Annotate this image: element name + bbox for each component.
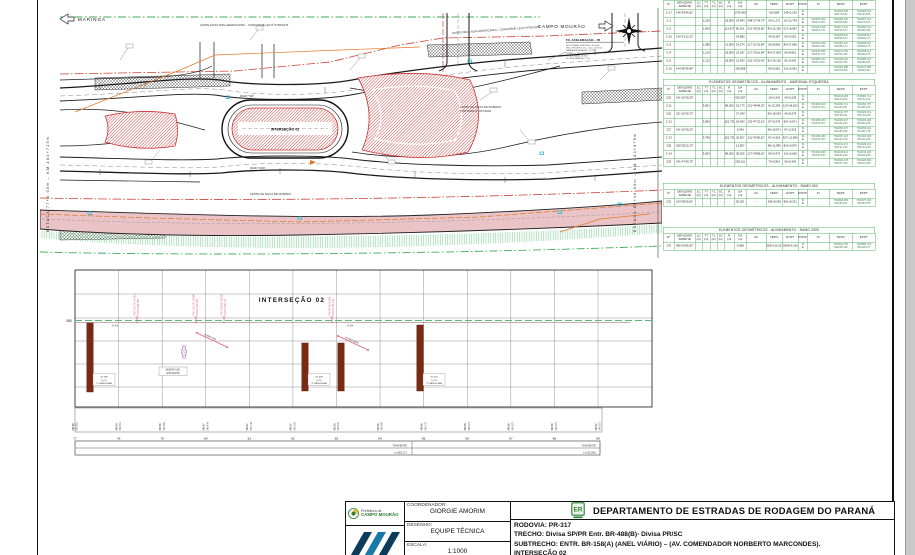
table-cell: 162,735 xyxy=(724,118,734,126)
table-cell: - xyxy=(674,102,695,110)
table-cell: 84+17,895 xyxy=(782,41,798,49)
table-cell: 1,116 xyxy=(702,49,710,57)
table-cell: 7364057,101 360276,815 xyxy=(852,17,875,25)
table-row: 229241°47'49,73"-----230,011-70+5,81090+… xyxy=(663,158,875,166)
table-cell: - xyxy=(717,49,724,57)
left-island xyxy=(105,111,178,148)
table-cell: - xyxy=(710,150,717,158)
elevation-ground: 549,162 xyxy=(295,421,297,430)
table-cell: N E xyxy=(798,110,807,118)
piv-point xyxy=(223,317,225,319)
table-cell: 7364066,407 361062,025 xyxy=(829,118,852,126)
table-cell: 96+15,871 xyxy=(766,126,782,134)
title-block-logos: Prefeitura de CAMPO MOURÃO xyxy=(346,502,405,555)
geo-table-grid: NºDEFLEXÃO AZIMUTELC (m)TT (m)TL (m)SC (… xyxy=(663,0,876,74)
table-cell: 88,000 xyxy=(724,102,734,110)
table-cell: - xyxy=(746,198,766,206)
table-cell: 7364067,103 361044,728 xyxy=(829,134,852,142)
table-cell: 7364063,818 361063,701 xyxy=(807,102,829,110)
elevation-axis-label: 550 xyxy=(66,319,72,323)
table-cell: - xyxy=(717,102,724,110)
svg-text:L=132,891: L=132,891 xyxy=(583,451,596,455)
table-cell: 70+5,810 xyxy=(766,158,782,166)
table-cell: C-16 xyxy=(663,33,674,41)
table-header-cell: DA (m) xyxy=(734,85,746,94)
trecho-line: TRECHO: Divisa SP/PR Entr. BR-488(B)- Di… xyxy=(514,530,894,539)
elevation-design: 549,86 xyxy=(552,423,554,431)
svg-text:TANGENTE: TANGENTE xyxy=(393,443,408,447)
table-cell: 90+8,340 xyxy=(782,158,798,166)
table-cell: - xyxy=(674,49,695,57)
title-block-project: ER DEPARTAMENTO DE ESTRADAS DE RODAGEM D… xyxy=(511,502,894,555)
table-row: C-17146°53'46,61"-----1725,453-013,08614… xyxy=(663,9,875,17)
table-cell: - xyxy=(710,126,717,134)
piv-label: COTA=549,218 xyxy=(332,298,335,315)
table-cell: - xyxy=(710,242,717,250)
table-header-cell: DEFLEXÃO AZIMUTE xyxy=(674,85,695,94)
table-cell: 25,483 xyxy=(734,118,746,126)
drawing-sheet: INTERSEÇÃO 02 xyxy=(0,0,915,555)
station-label: 82 xyxy=(291,437,295,441)
table-cell: 7363977,209 361352,878 xyxy=(852,198,875,206)
table-cell: - xyxy=(695,9,702,17)
table-cell: C-1 xyxy=(663,17,674,25)
table-cell: 1,225 xyxy=(702,17,710,25)
elevation-design: 549,86 xyxy=(465,423,467,431)
page-edge xyxy=(905,0,915,555)
table-cell: - xyxy=(702,110,710,118)
borehole-bar xyxy=(302,343,308,391)
elevation-design: 549,85 xyxy=(334,423,336,431)
table-cell: N E xyxy=(798,126,807,134)
table-cell: 190,088 xyxy=(734,65,746,73)
borehole-label: ST 010 xyxy=(430,376,438,378)
table-row: 232163°08'26,81"-----55,201-180+8,295802… xyxy=(663,198,875,206)
svg-text:VELOCIDADE DIRETRIZ = 40 Km/h: VELOCIDADE DIRETRIZ = 40 Km/h xyxy=(566,44,601,47)
table-cell: - xyxy=(807,142,829,150)
table-cell: 23,500 xyxy=(734,57,746,65)
table-row: C-16140°13'12,23"-----24,880-43+8,28703+… xyxy=(663,33,875,41)
table-cell: 7364055,413 360308,278 xyxy=(852,49,875,57)
table-header-cell: ET/PT xyxy=(782,0,798,9)
geo-table-grid: NºDEFLEXÃO AZIMUTELC (m)TT (m)TL (m)SC (… xyxy=(663,85,876,167)
table-cell: 1725,453 xyxy=(734,9,746,17)
n-logo-icon xyxy=(346,526,402,555)
table-cell: - xyxy=(746,94,766,102)
table-row: 225241°18'18,33"-----602,287-10+1,94140+… xyxy=(663,94,875,102)
accel-note: FX. ACELERAÇÃO – 05 VELOCIDADE DIRETRIZ … xyxy=(548,37,624,60)
table-header-cell: TE/PC xyxy=(766,85,782,94)
table-cell: 146°53'46,61" xyxy=(674,9,695,17)
direction-maringa: MARINGÁ xyxy=(60,14,106,24)
elevation-ground: 549,434 xyxy=(207,421,209,430)
svg-text:FX. SEGURANÇA = 75 m: FX. SEGURANÇA = 75 m xyxy=(566,57,590,60)
table-cell: 212°36'18,80" xyxy=(746,25,766,33)
table-cell: 7364058,813 360508,210 xyxy=(829,33,852,41)
table-cell: 627+11,895 xyxy=(782,134,798,142)
table-header-cell: DA (m) xyxy=(734,0,746,9)
table-header-cell: TE/PC xyxy=(829,85,852,94)
table-cell: - xyxy=(695,142,702,150)
table-cell: N E xyxy=(798,65,807,73)
flow-arrow xyxy=(310,160,316,165)
table-cell: - xyxy=(695,94,702,102)
table-header-cell: DEFLEXÃO AZIMUTE xyxy=(674,189,695,198)
table-cell: - xyxy=(807,126,829,134)
table-cell: - xyxy=(724,94,734,102)
table-cell: 7363982,714 360700,202 xyxy=(852,94,875,102)
table-row: 228208°28'22,23"-----13,807-98+11,985814… xyxy=(663,142,875,150)
der-logo-icon: ER xyxy=(571,502,585,519)
table-cell: - xyxy=(710,118,717,126)
table-cell: C-5 xyxy=(663,57,674,65)
table-cell: - xyxy=(695,102,702,110)
piv-label: COTA=549,374 xyxy=(196,298,199,315)
table-cell: - xyxy=(724,65,734,73)
borehole-label: ST 008 xyxy=(100,376,108,378)
table-row: C-12--3,850--162,73525,483232°47'22,41"8… xyxy=(663,118,875,126)
table-cell: 140°13'12,23" xyxy=(674,33,695,41)
table-cell: 2824+12,012 xyxy=(766,242,782,250)
table-cell: - xyxy=(717,33,724,41)
table-header-cell: TE/PC xyxy=(829,233,852,242)
table-cell: - xyxy=(724,126,734,134)
elevation-ground: 549,872 xyxy=(600,421,602,430)
table-row: C-2--1,600--113,67585,201212°36'18,80"80… xyxy=(663,25,875,33)
table-cell: 7364088,410 360388,264 xyxy=(852,57,875,65)
elevation-design: 549,87 xyxy=(596,423,598,431)
table-header-cell: R (m) xyxy=(724,189,734,198)
table-header-cell: PONTO xyxy=(798,85,807,94)
plan-drawing: INTERSEÇÃO 02 xyxy=(40,0,662,264)
elevation-ground: 549,873 xyxy=(469,421,471,430)
elevation-ground: 549,320 xyxy=(338,421,340,430)
escala-value: 1:1000 xyxy=(407,548,508,555)
table-cell: - xyxy=(674,150,695,158)
table-cell: 05+8,892 xyxy=(766,41,782,49)
table-cell: 24,274 xyxy=(734,41,746,49)
table-cell: - xyxy=(710,102,717,110)
table-cell: N E xyxy=(798,158,807,166)
title-block: Prefeitura de CAMPO MOURÃO COORDENADOR: … xyxy=(345,501,895,555)
table-row: 270096°24'56,92"-----9,088-2824+12,01229… xyxy=(663,242,875,250)
table-row: C-1--1,225--18,00024,694248°27'34,74"09+… xyxy=(663,17,875,25)
table-cell: - xyxy=(746,9,766,17)
table-cell: 5,825 xyxy=(702,150,710,158)
table-cell: N E xyxy=(798,33,807,41)
estaca-right-label: ESTACA 89+10,00m – KM 183+975m xyxy=(633,133,637,232)
table-cell: 85,201 xyxy=(734,25,746,33)
direction-campo-mourao: CAMPO MOURÃO xyxy=(538,21,613,31)
table-cell: N E xyxy=(798,134,807,142)
table-cell: - xyxy=(702,142,710,150)
table-header-cell: TT (m) xyxy=(702,0,710,9)
geo-table-grid: NºDEFLEXÃO AZIMUTELC (m)TT (m)TL (m)SC (… xyxy=(663,233,876,251)
table-header-cell: ET/PT xyxy=(852,85,875,94)
table-header-cell: SC (m) xyxy=(717,233,724,242)
city-logo-line2: CAMPO MOURÃO xyxy=(361,513,399,517)
table-cell: 7364058,901 360508,273 xyxy=(852,33,875,41)
piv-point xyxy=(136,317,138,319)
table-cell: 1,212 xyxy=(702,57,710,65)
tangent-band: TANGENTE L=158,171 TANGENTE L=132,891 xyxy=(75,441,600,455)
table-cell: - xyxy=(724,198,734,206)
table-header-cell: PI xyxy=(807,85,829,94)
table-cell: 80+12,195 xyxy=(766,25,782,33)
table-cell: C-15 xyxy=(663,65,674,73)
ramo-500-label: RAMO "500" xyxy=(240,95,254,98)
table-cell: 7364084,463 360123,838 xyxy=(852,9,875,17)
table-cell: N E xyxy=(798,9,807,17)
table-cell: 241°18'18,32" xyxy=(674,126,695,134)
table-cell: C-17 xyxy=(663,9,674,17)
table-cell: 23,187 xyxy=(734,49,746,57)
north-compass-icon xyxy=(615,17,643,45)
table-header-cell: LC (m) xyxy=(695,85,702,94)
table-cell: 7364029,001 360748,228 xyxy=(852,110,875,118)
table-header-cell: SC (m) xyxy=(717,189,724,198)
table-header-cell: TL (m) xyxy=(710,0,717,9)
station-label: 87 xyxy=(509,437,513,441)
direction-left-label: MARINGÁ xyxy=(78,16,106,22)
table-cell: 7364068,468 361046,708 xyxy=(807,134,829,142)
table-cell: 88,000 xyxy=(724,150,734,158)
table-cell: - xyxy=(702,9,710,17)
borehole-bar xyxy=(338,343,344,391)
table-cell: 09+1,272 xyxy=(766,17,782,25)
table-header-cell: PI xyxy=(807,189,829,198)
coordenador-value: GIORGIE AMORIM xyxy=(407,508,508,516)
table-cell: C-3 xyxy=(663,41,674,49)
table-row: 227241°18'18,32"-----5,940-96+15,87187+2… xyxy=(663,126,875,134)
table-cell: 43+8,287 xyxy=(766,33,782,41)
table-cell: C-13 xyxy=(663,134,674,142)
table-header-cell: TL (m) xyxy=(710,189,717,198)
table-cell: 27,043 xyxy=(734,110,746,118)
borehole-label: L=7-5 xyxy=(431,380,437,382)
table-cell: - xyxy=(717,126,724,134)
borehole-label: 1ª CATEGORIA xyxy=(426,382,442,385)
table-cell: - xyxy=(717,242,724,250)
table-cell: - xyxy=(695,118,702,126)
table-cell: 7364018,068 360645,308 xyxy=(807,150,829,158)
table-cell: 229 xyxy=(663,158,674,166)
table-cell: 26,827 xyxy=(734,134,746,142)
table-cell: - xyxy=(710,41,717,49)
station-label: 78 xyxy=(117,437,121,441)
borehole-label: ST 009 xyxy=(315,376,323,378)
table-cell: 7364092,898 360343,208 xyxy=(829,65,852,73)
table-cell: - xyxy=(724,242,734,250)
table-cell: - xyxy=(807,33,829,41)
table-cell: 180+8,295 xyxy=(766,198,782,206)
elevation-ground: 549,851 xyxy=(120,421,122,430)
table-header-cell: AC xyxy=(746,85,766,94)
borehole-label: L=7-5 xyxy=(316,380,322,382)
table-cell: 10+12,745 xyxy=(782,17,798,25)
table-cell: 217°20'16,84" xyxy=(746,49,766,57)
table-cell: - xyxy=(746,126,766,134)
svg-text:EXISTENTE: EXISTENTE xyxy=(167,373,180,375)
table-header-cell: LC (m) xyxy=(695,0,702,9)
elevation-labels: 549,88549,851549,90549,851549,86549,8695… xyxy=(73,421,602,430)
table-row: C-11--5,851--88,00018,770212°48'48,32"8+… xyxy=(663,102,875,110)
table-cell: - xyxy=(717,57,724,65)
table-header-cell: SC (m) xyxy=(717,85,724,94)
table-cell: - xyxy=(695,198,702,206)
ramo-2000-label: RAMO "2000" xyxy=(250,167,266,170)
table-cell: 013,086 xyxy=(766,9,782,17)
table-cell: 7364031,471 360721,708 xyxy=(829,142,852,150)
table-cell: - xyxy=(695,33,702,41)
table-cell: - xyxy=(695,57,702,65)
table-cell: 13,000 xyxy=(724,41,734,49)
table-cell: 7364064,208 361040,208 xyxy=(852,134,875,142)
table-cell: 7364010,787 360768,201 xyxy=(829,110,852,118)
table-cell: 7364093,441 360325,494 xyxy=(852,25,875,33)
table-header-cell: AC xyxy=(746,0,766,9)
table-cell: - xyxy=(710,17,717,25)
table-cell: 101+0,081 xyxy=(782,65,798,73)
elevation-ground: 549,770 xyxy=(425,421,427,430)
table-cell: - xyxy=(717,158,724,166)
table-cell: 13,807 xyxy=(734,142,746,150)
table-cell: 227 xyxy=(663,126,674,134)
table-header-cell: R (m) xyxy=(724,233,734,242)
table-cell: 7364083,220 360411,520 xyxy=(807,57,829,65)
pavement-hatch xyxy=(95,74,230,90)
table-cell: 7364056,940 360305,838 xyxy=(829,17,852,25)
table-cell: 120+18,812 xyxy=(782,102,798,110)
table-cell: - xyxy=(710,9,717,17)
table-cell: - xyxy=(746,158,766,166)
table-cell: 7364054,787 361068,245 xyxy=(852,102,875,110)
table-cell: - xyxy=(695,150,702,158)
sheet-left-border xyxy=(37,0,39,555)
table-cell: - xyxy=(702,94,710,102)
table-cell: 7364029,013 360720,228 xyxy=(852,142,875,150)
table-cell: N E xyxy=(798,198,807,206)
table-cell: N E xyxy=(798,118,807,126)
table-cell: N E xyxy=(798,49,807,57)
table-cell: - xyxy=(710,134,717,142)
table-cell: - xyxy=(674,134,695,142)
table-header-cell: LC (m) xyxy=(695,233,702,242)
table-header-cell: AC xyxy=(746,233,766,242)
table-row: 226221°18'18,72"-----27,043-83+18,03440+… xyxy=(663,110,875,118)
der-logo-text: ER xyxy=(574,507,583,514)
section-marker: S–04 xyxy=(347,325,353,328)
table-cell: - xyxy=(695,49,702,57)
svg-text:RAMPA ACELERAÇÃO = 0,75%: RAMPA ACELERAÇÃO = 0,75% xyxy=(566,49,596,52)
table-cell: 7364022,478 360327,418 xyxy=(829,158,852,166)
elevation-design: 549,86 xyxy=(160,423,162,431)
table-cell: - xyxy=(710,110,717,118)
table-cell: - xyxy=(674,41,695,49)
table-cell: - xyxy=(746,142,766,150)
table-cell: 18,770 xyxy=(734,102,746,110)
table-cell: 7364056,410 361056,728 xyxy=(852,126,875,134)
table-header-cell: TT (m) xyxy=(702,233,710,242)
table-cell: 28,205 xyxy=(734,150,746,158)
table-cell: 7364069,228 361060,208 xyxy=(852,118,875,126)
profile-frame xyxy=(75,270,652,407)
table-cell: - xyxy=(710,198,717,206)
borehole-label: 1ª CATEGORIA xyxy=(311,382,327,385)
station-label: 80 xyxy=(204,437,208,441)
profile-drawing: 550 INTERSEÇÃO 02 RAMO 500 RAMO 2000 S–0… xyxy=(60,265,662,463)
table-header-cell: ET/PT xyxy=(852,233,875,242)
table-cell: 87+4,318 xyxy=(766,134,782,142)
svg-text:TANGENTE: TANGENTE xyxy=(582,443,597,447)
elevation-design: 549,87 xyxy=(204,423,206,431)
table-cell: C-14 xyxy=(663,150,674,158)
table-cell: 55,201 xyxy=(734,198,746,206)
table-cell: C-11 xyxy=(663,102,674,110)
table-cell: 225 xyxy=(663,94,674,102)
table-cell: 1,588 xyxy=(702,41,710,49)
table-cell: N E xyxy=(798,242,807,250)
table-cell: - xyxy=(702,65,710,73)
department-header: ER DEPARTAMENTO DE ESTRADAS DE RODAGEM D… xyxy=(511,502,894,520)
table-cell: 5,851 xyxy=(702,102,710,110)
table-cell: - xyxy=(695,126,702,134)
table-cell: - xyxy=(695,110,702,118)
table-cell: - xyxy=(807,65,829,73)
table-cell: 7364090,118 360402,335 xyxy=(829,57,852,65)
table-cell: 8+13,258 xyxy=(766,102,782,110)
table-cell: - xyxy=(746,65,766,73)
desenho-row: DESENHO: EQUIPE TÉCNICA xyxy=(405,522,510,542)
table-cell: 24,880 xyxy=(734,33,746,41)
table-cell: 217°49'58,42" xyxy=(746,150,766,158)
table-cell: - xyxy=(717,65,724,73)
intersection-label: INTERSEÇÃO 02 xyxy=(271,127,300,132)
table-cell: - xyxy=(807,158,829,166)
limit-domain-label-2: PORTARIA Nº 057/2018 xyxy=(460,109,492,113)
table-cell: 228 xyxy=(663,142,674,150)
table-cell: 18,000 xyxy=(724,49,734,57)
geo-table-grid: NºDEFLEXÃO AZIMUTELC (m)TT (m)TL (m)SC (… xyxy=(663,189,876,207)
station-labels: 77787980818283848586878889 xyxy=(73,437,600,441)
borehole-label: L=1-0 xyxy=(101,380,107,382)
table-cell: 232°47'22,41" xyxy=(746,118,766,126)
table-cell: - xyxy=(717,25,724,33)
limit-domain-label-bottom: LIMITE DE FAIXA DE DOMÍNIO xyxy=(250,192,292,196)
table-cell: 208°28'22,23" xyxy=(674,142,695,150)
table-cell: 7364113,048 360313,745 xyxy=(807,25,829,33)
table-row: C-3--1,588--13,00024,274217°21'26,84"05+… xyxy=(663,41,875,49)
intersecao-line: INTERSEÇÃO 02 xyxy=(514,549,894,555)
pavement-hatch xyxy=(427,42,532,57)
svg-text:VEÍC. PROJETO: CO – Vop = 60 K: VEÍC. PROJETO: CO – Vop = 60 Km/h xyxy=(566,47,603,50)
table-header-cell: PONTO xyxy=(798,0,807,9)
table-cell: - xyxy=(710,65,717,73)
piv-point xyxy=(195,317,197,319)
table-cell: - xyxy=(807,94,829,102)
station-label: 79 xyxy=(160,437,164,441)
table-cell: 83+18,034 xyxy=(766,110,782,118)
table-cell: - xyxy=(717,94,724,102)
station-label: 81 xyxy=(248,437,252,441)
table-cell: 7364029,828 360312,028 xyxy=(852,158,875,166)
profile-grid xyxy=(75,270,652,407)
table-cell: 80+5,851 xyxy=(766,65,782,73)
table-cell: 270 xyxy=(663,242,674,250)
table-cell: 814+0,875 xyxy=(782,142,798,150)
table-cell: 7363880,718 360318,077 xyxy=(852,242,875,250)
elevation-ground: 549,144 xyxy=(251,421,253,430)
